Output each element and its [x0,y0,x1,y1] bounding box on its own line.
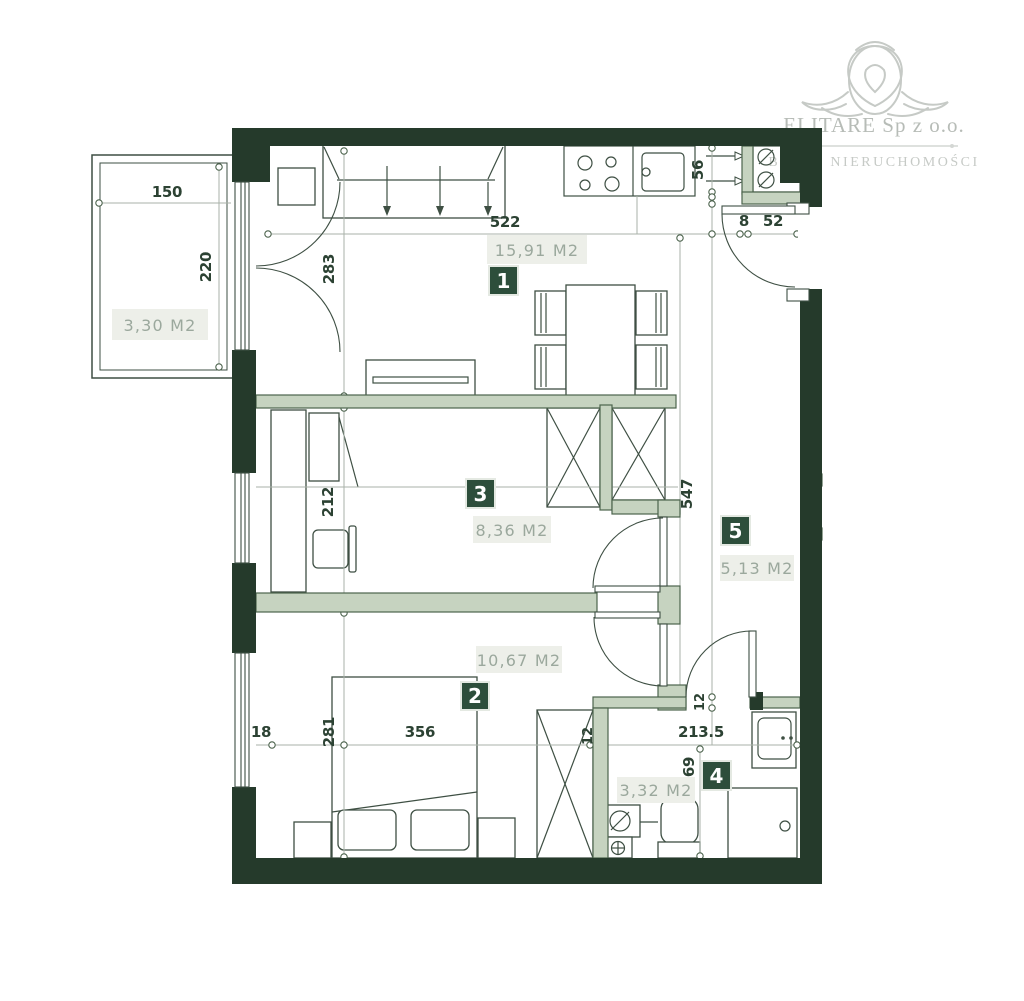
floor-plan: ELITARE Sp z o.o. BIURO NIERUCHOMOŚCI [0,0,1024,1001]
dim-living-width: 522 [490,213,520,231]
balcony-door-window [231,182,256,350]
dim-room2-height: 281 [320,717,338,747]
svg-text:1: 1 [497,269,511,293]
sofa [323,145,505,218]
dim-niche-height: 56 [689,160,707,180]
floor-plan-page: ELITARE Sp z o.o. BIURO NIERUCHOMOŚCI [0,0,1024,1001]
desk [309,413,358,487]
wardrobe-right [612,408,665,500]
nightstand-right [478,818,515,858]
washbasin [752,712,796,768]
svg-text:4: 4 [710,764,724,788]
door-bathroom [686,631,756,697]
dim-balcony-door: 283 [320,254,338,284]
living-area-label: 15,91 M2 [495,241,579,260]
room-badge-1: 1 [489,266,518,295]
shower [728,788,797,858]
room2-area-label: 10,67 M2 [477,651,561,670]
tv-stand [366,360,475,396]
balcony-area-label: 3,30 M2 [123,316,196,335]
side-table [278,168,315,205]
dim-hall-length: 547 [678,479,696,509]
kitchen-sink [642,153,684,191]
utility-shaft [604,805,640,858]
stove [578,156,619,191]
room-badge-3: 3 [466,479,495,508]
dim-room2-width: 356 [405,723,435,741]
dim-balcony-width: 150 [152,183,182,201]
room3-area-label: 8,36 M2 [475,521,548,540]
nightstand-left [294,822,331,858]
dim-balcony-depth: 220 [197,252,215,282]
wardrobe-left [547,408,600,507]
svg-text:3: 3 [474,482,488,506]
window-room2 [231,653,256,787]
dim-window-offset: 18 [251,723,271,741]
door-room2 [594,612,667,686]
room-badge-2: 2 [461,682,489,710]
svg-text:5: 5 [729,519,743,543]
window-room3 [231,473,256,563]
chair [313,526,356,572]
dim-entry-width: 52 [763,212,783,230]
dim-wall-thickness-a: 12 [581,727,596,745]
lion-emblem-icon [802,42,948,116]
hall-area-label: 5,13 M2 [720,559,793,578]
dim-room3-height: 212 [319,487,337,517]
door-room3 [593,517,667,592]
dim-bath-width: 213.5 [678,723,724,741]
dining-table-set [535,285,667,398]
room-badge-4: 4 [702,761,731,790]
svg-text:2: 2 [468,684,482,708]
bathroom-area-label: 3,32 M2 [619,781,692,800]
dim-entry-offset: 8 [739,212,749,230]
dim-wall-thickness-b: 12 [693,693,708,711]
bed-single [271,410,306,592]
room-badge-5: 5 [721,516,750,545]
double-bed [332,677,477,858]
